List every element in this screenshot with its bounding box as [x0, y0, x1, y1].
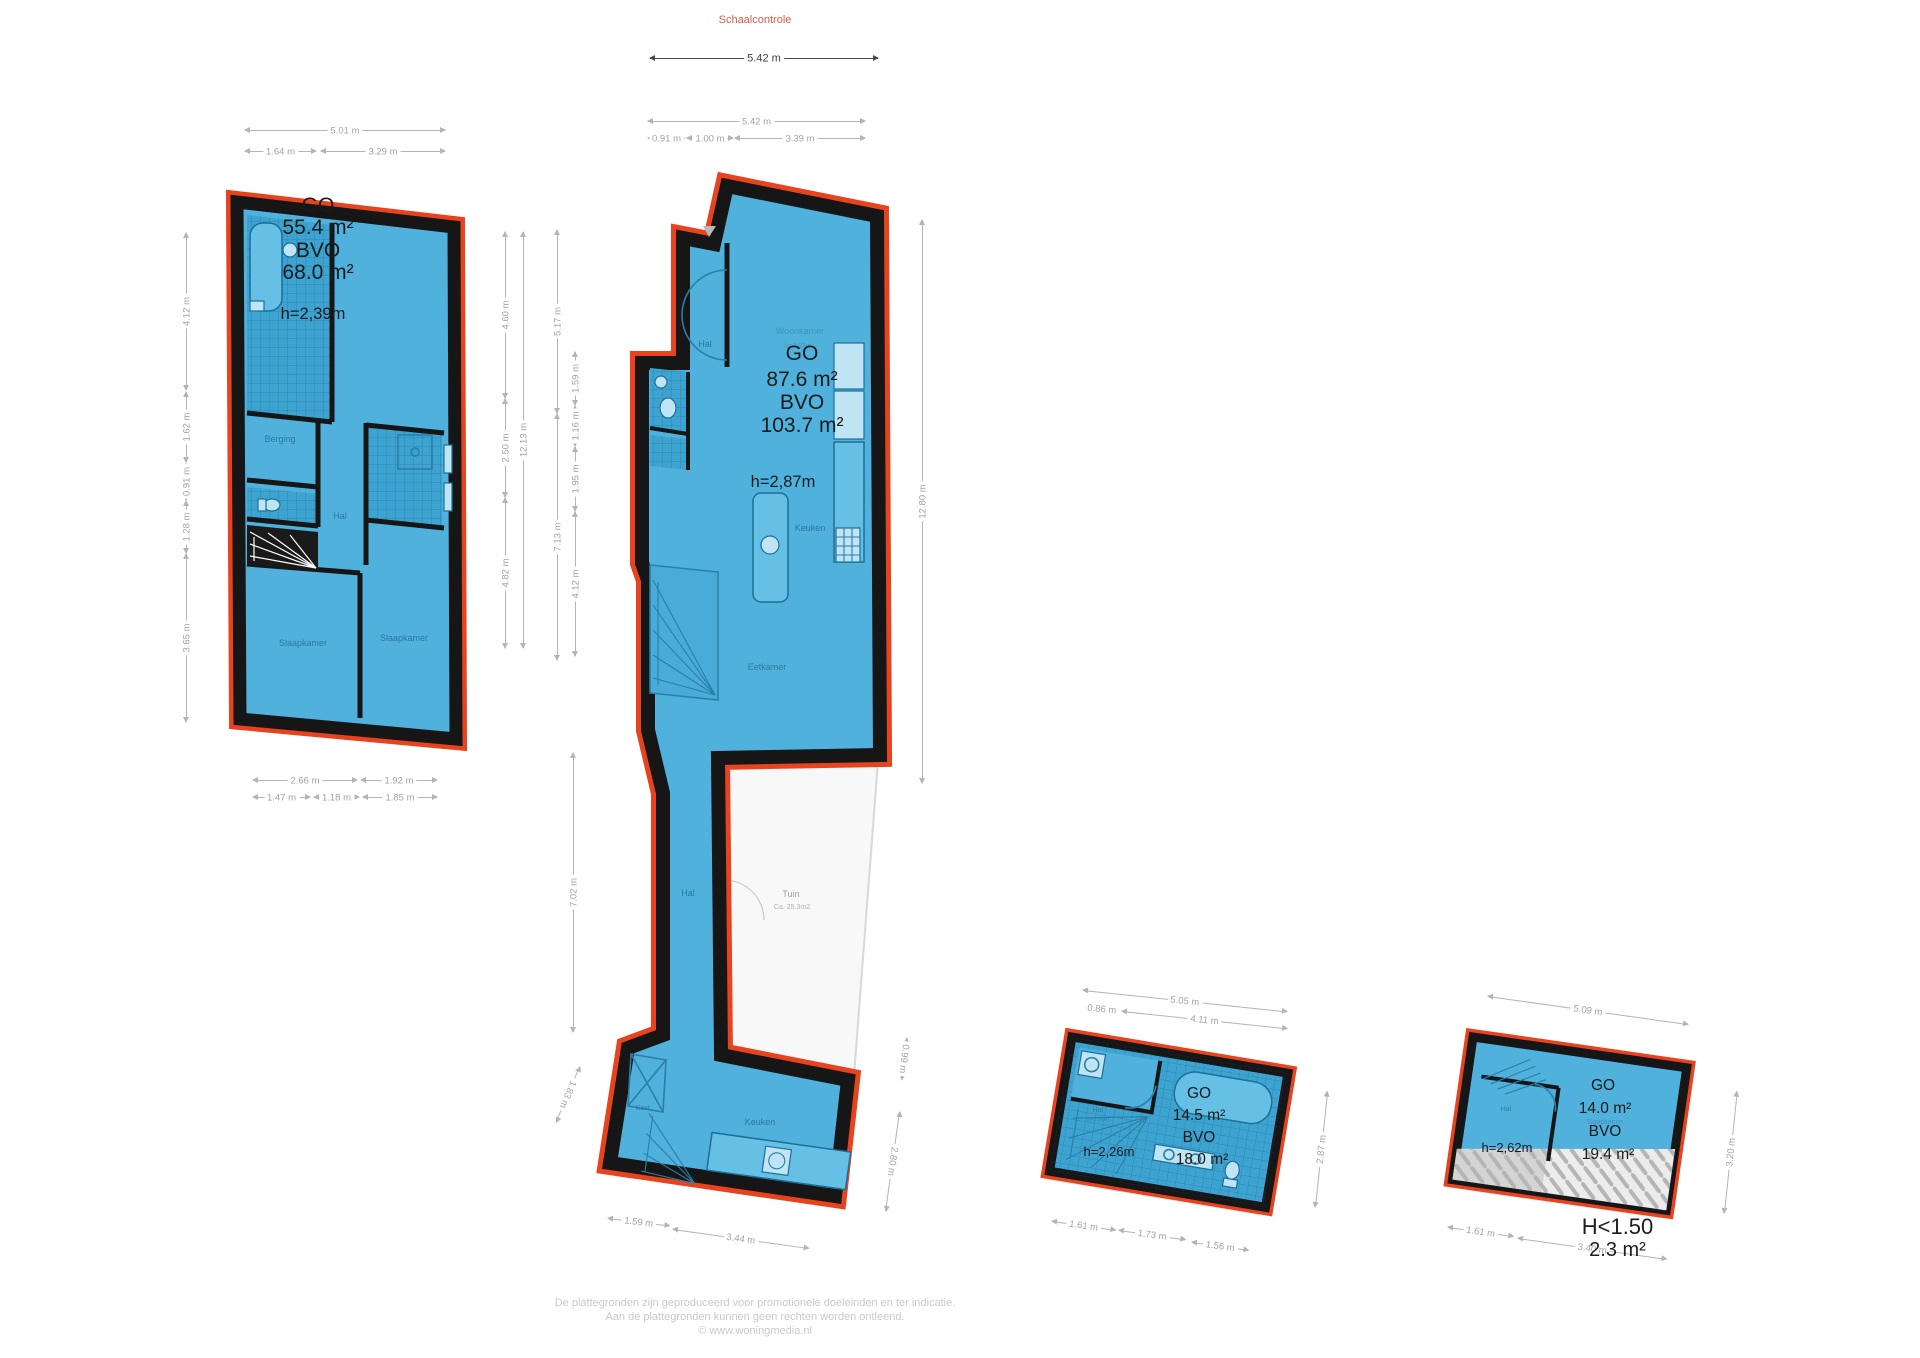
go-label: GO — [1187, 1085, 1211, 1102]
room-label-keuken: Keuken — [795, 523, 826, 533]
footer-line3: © www.woningmedia.nl — [400, 1324, 1110, 1338]
room-label-kast: Kast — [636, 1105, 650, 1112]
island-sink-icon — [761, 536, 779, 554]
closet-icon — [444, 483, 452, 511]
floorplan-first-floor: GO 55.4 m² BVO 68.0 m² h=2,39m Berging H… — [170, 95, 480, 815]
go-label: GO — [786, 342, 819, 365]
ceiling-height-label: h=2,62m — [1482, 1140, 1533, 1155]
room-label-woonkamer: Woonkamer — [776, 326, 824, 336]
footer-line2: Aan de plattegronden kunnen geen rechten… — [400, 1310, 1110, 1324]
shower-tiles — [366, 425, 442, 527]
bvo-label: BVO — [1183, 1129, 1216, 1146]
sink-icon — [762, 1146, 791, 1175]
stove-icon — [836, 528, 860, 562]
room-label-hal: Hal — [1093, 1107, 1104, 1114]
toilet-block — [650, 368, 688, 470]
dimension-line: 5.42 m — [650, 58, 878, 59]
room-label-hal: Hal — [1501, 1106, 1512, 1113]
go-label: GO — [302, 194, 335, 217]
bvo-value: 18.0 m² — [1176, 1151, 1229, 1168]
room-label-eetkamer: Eetkamer — [748, 662, 787, 672]
low-height-line1: H<1.50 — [1550, 1214, 1685, 1239]
bvo-label: BVO — [296, 239, 340, 262]
bathtub-icon — [250, 223, 282, 311]
bvo-value: 19.4 m² — [1582, 1146, 1635, 1163]
washbasin-icon — [250, 301, 264, 311]
bvo-value: 68.0 m² — [282, 261, 353, 284]
footer-line1: De plattegronden zijn geproduceerd voor … — [400, 1296, 1110, 1310]
go-value: 55.4 m² — [282, 216, 353, 239]
room-label-slaapkamer-right: Slaapkamer — [380, 633, 428, 643]
low-height-annotation: H<1.50 2.3 m² — [1550, 1214, 1685, 1262]
room-label-hal: Hal — [333, 511, 347, 521]
room-label-hal: Hal — [698, 339, 712, 349]
room-label-berging: Berging — [264, 434, 295, 444]
room-label-tuin: Tuin — [782, 889, 799, 899]
footer-disclaimer: De plattegronden zijn geproduceerd voor … — [400, 1296, 1110, 1338]
floorplan-ground-floor: Woonkamer h=2,87m Hal GO 87.6 m² BVO 103… — [500, 110, 940, 1280]
bvo-label: BVO — [1589, 1123, 1622, 1140]
sink-icon — [655, 376, 667, 388]
go-value: 14.0 m² — [1579, 1100, 1632, 1117]
bvo-value: 103.7 m² — [761, 414, 844, 437]
garden-tuin — [724, 761, 878, 1076]
room-label-keuken-lower: Keuken — [745, 1117, 776, 1127]
ceiling-height-label: h=2,26m — [1084, 1144, 1135, 1159]
go-label: GO — [1591, 1077, 1615, 1094]
floorplan-mezzanine: GO 14.5 m² BVO 18.0 m² h=2,26m Hal h=2.2… — [1035, 1005, 1355, 1250]
room-height-hal: h=2.26m — [1087, 1117, 1109, 1123]
toilet-icon — [258, 499, 280, 511]
go-value: 87.6 m² — [766, 368, 837, 391]
dimension-label: 5.42 m — [744, 53, 784, 64]
stairs — [247, 525, 318, 570]
washer-icon — [1078, 1051, 1106, 1079]
stairs — [650, 565, 718, 700]
go-value: 14.5 m² — [1173, 1107, 1226, 1124]
low-height-line2: 2.3 m² — [1550, 1239, 1685, 1262]
toilet-icon — [660, 398, 676, 418]
tuin-area-label: Ca. 25.3m2 — [774, 904, 810, 911]
fridge-icon — [834, 343, 864, 389]
bvo-label: BVO — [780, 391, 824, 414]
room-label-hal-corridor: Hal — [681, 888, 695, 898]
ceiling-height-label: h=2,87m — [751, 473, 816, 491]
closet-icon — [444, 445, 452, 473]
ceiling-height-label: h=2,39m — [281, 305, 346, 323]
room-label-slaapkamer-left: Slaapkamer — [279, 638, 327, 648]
